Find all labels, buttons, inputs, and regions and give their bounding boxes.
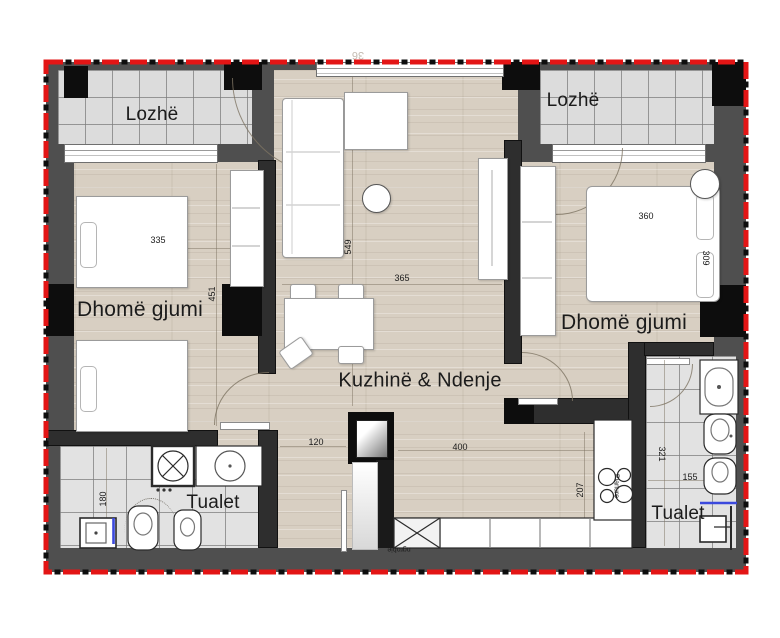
property-boundary [0, 0, 780, 638]
floor-plan: LozhëLozhëDhomë gjumiKuzhinë & NdenjeDho… [0, 0, 780, 638]
